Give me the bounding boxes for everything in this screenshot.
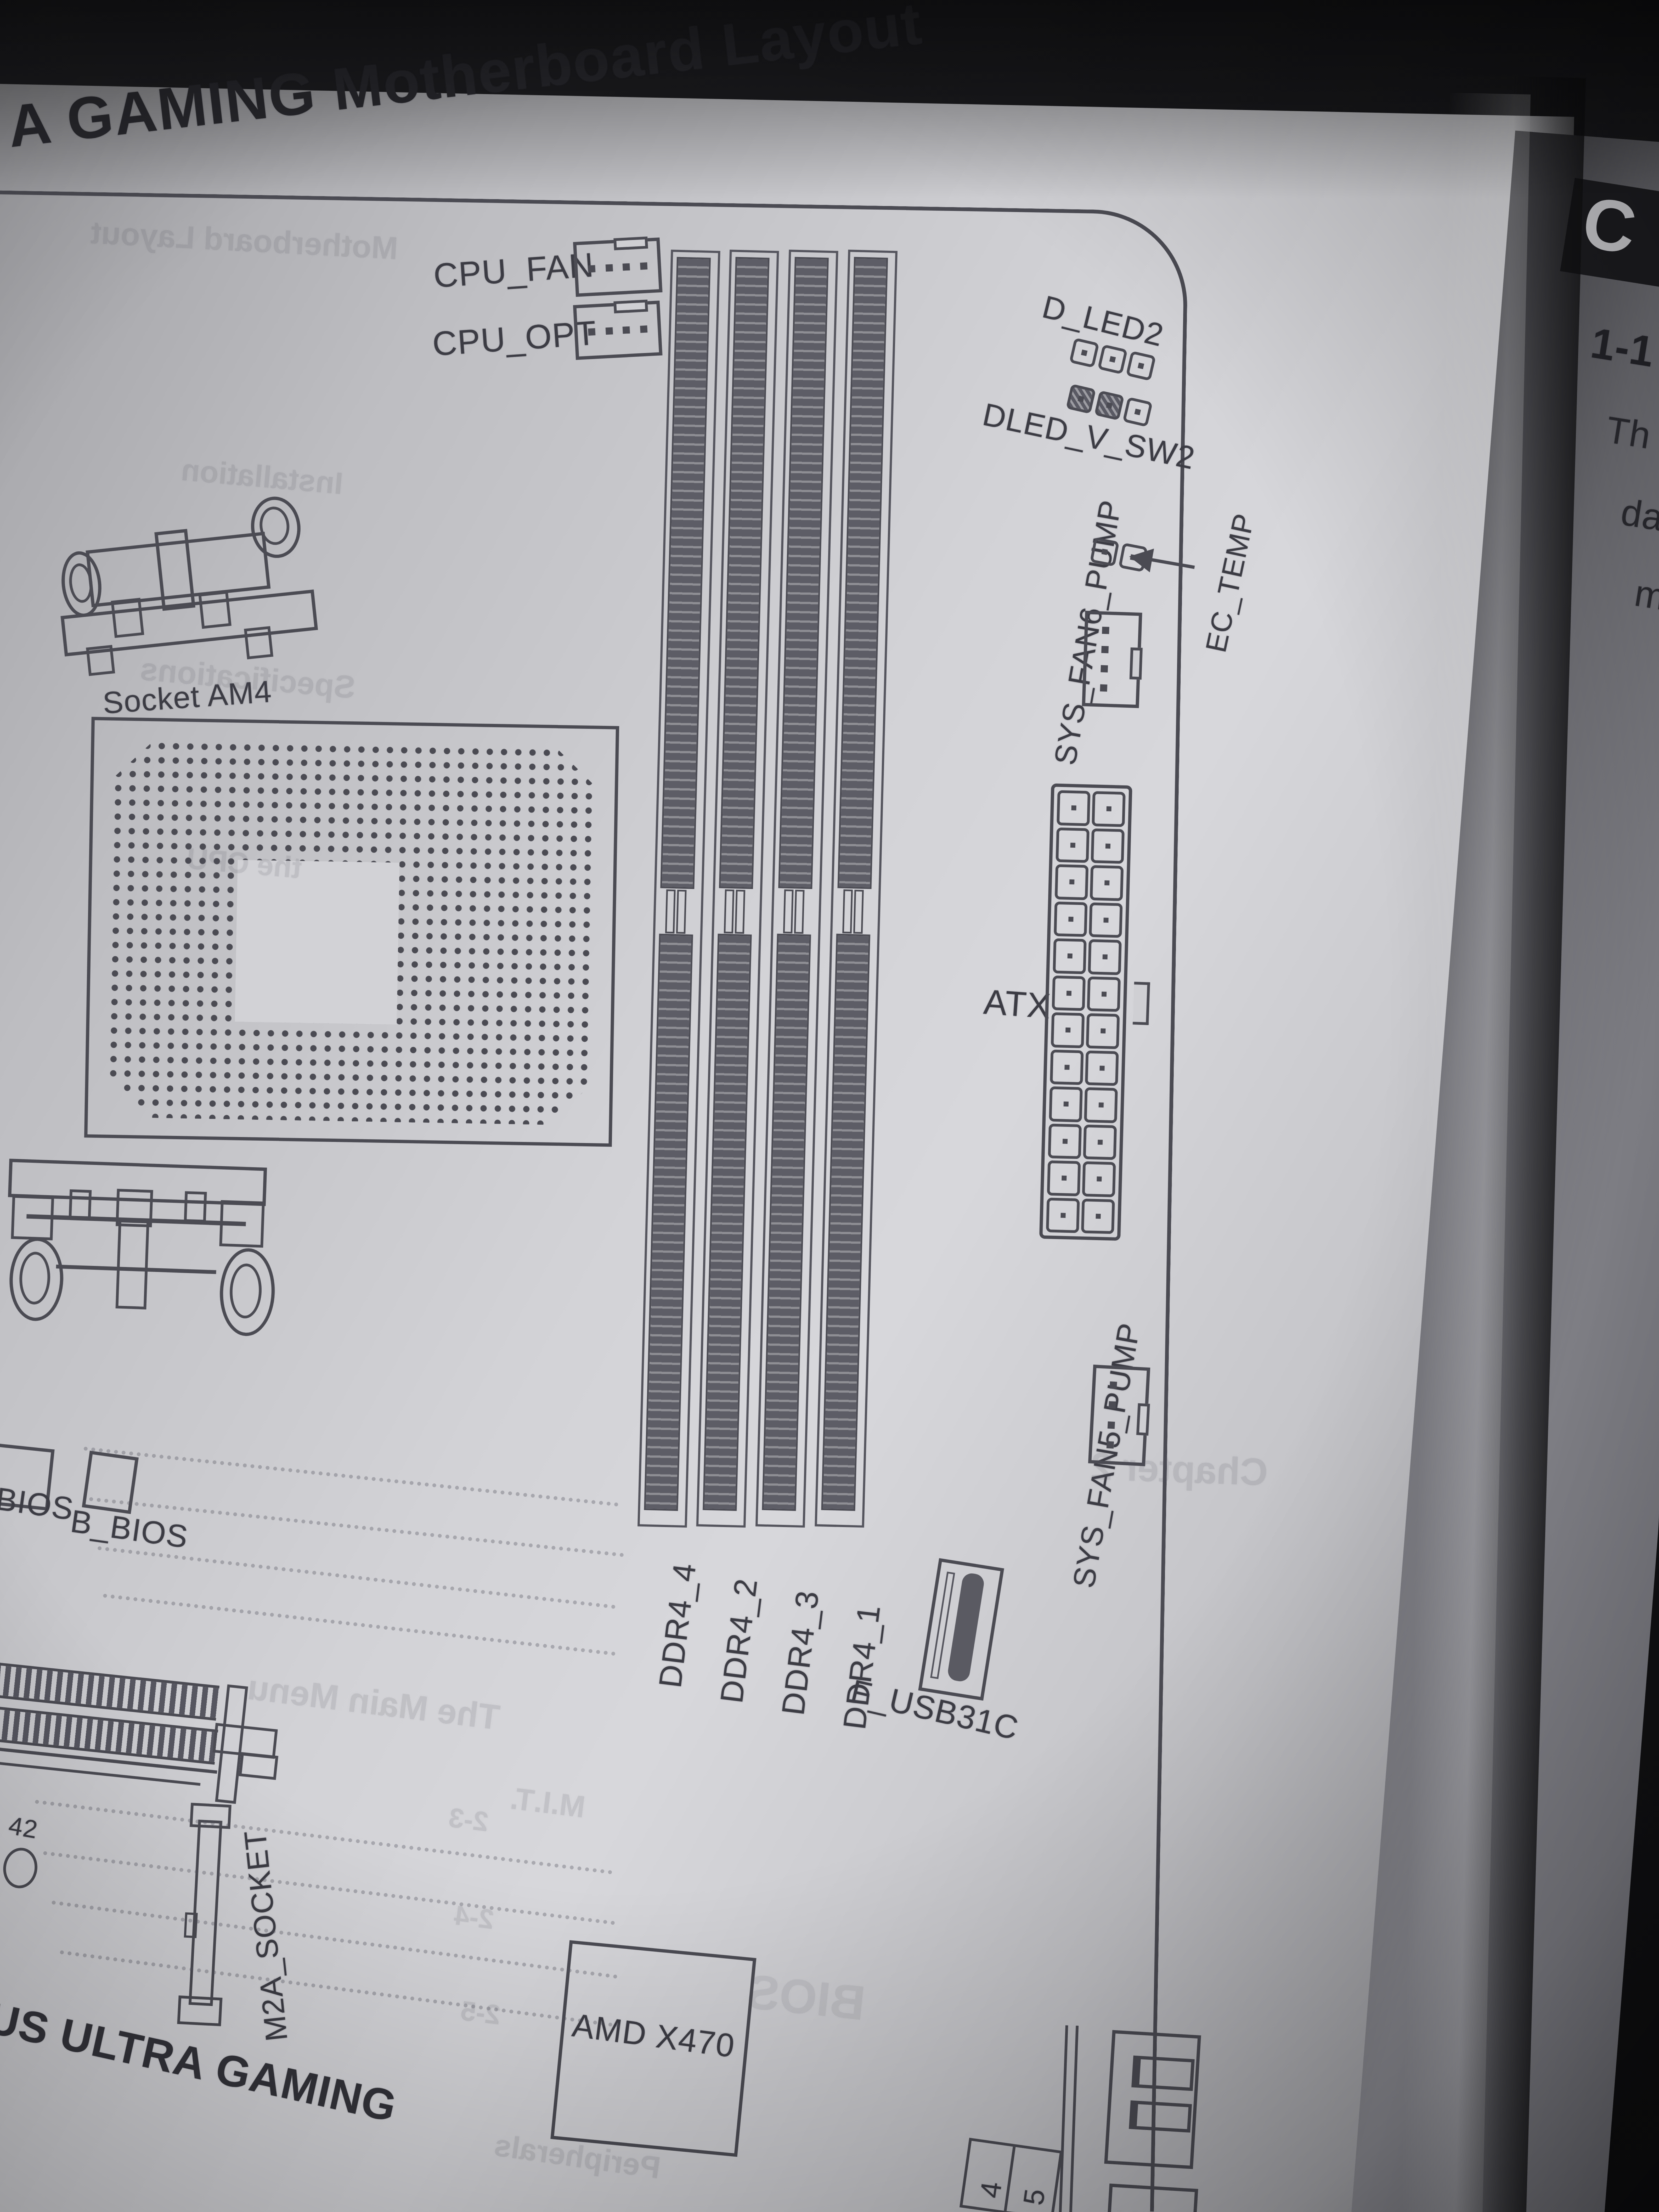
sata-port-label: 4 [974,2179,1009,2200]
sata-ports-box: 4 5 [960,2138,1063,2212]
cpu-bracket-bottom-icon [3,1159,273,1338]
atx-label: ATX [983,981,1053,1026]
bleedthrough-text: Chapter 2 [1090,1444,1268,1494]
photo-of-manual-page: A GAMING Motherboard Layout CPU_FAN CPU_… [0,0,1659,2212]
bleedthrough-text: 2-3 [447,1802,490,1838]
bleedthrough-text: 2-5 [459,1995,503,2031]
next-page-text-fragment: da [1618,490,1659,539]
next-page-text-fragment: Th [1603,408,1654,458]
cpu-opt-connector-icon [573,301,662,360]
sata-port-label: 5 [1017,2186,1052,2207]
cpu-socket-center [235,860,399,1024]
cpu-fan-connector-icon [573,238,662,297]
usb-port-connector-icon [1107,2183,1198,2212]
chapter-initial: C [1577,180,1642,270]
atx-latch-icon [1133,982,1150,1025]
cpu-socket-icon [84,717,619,1147]
usb-port-connector-icon [1104,2030,1201,2169]
section-number: 1-1 [1588,318,1658,377]
atx-24pin-connector-icon [1039,783,1132,1241]
chipset-label: AMD X470 [570,2006,737,2065]
sys-fan6-pump-connector-icon [1082,611,1142,708]
mounting-hole-label: 42 [7,1810,41,1844]
